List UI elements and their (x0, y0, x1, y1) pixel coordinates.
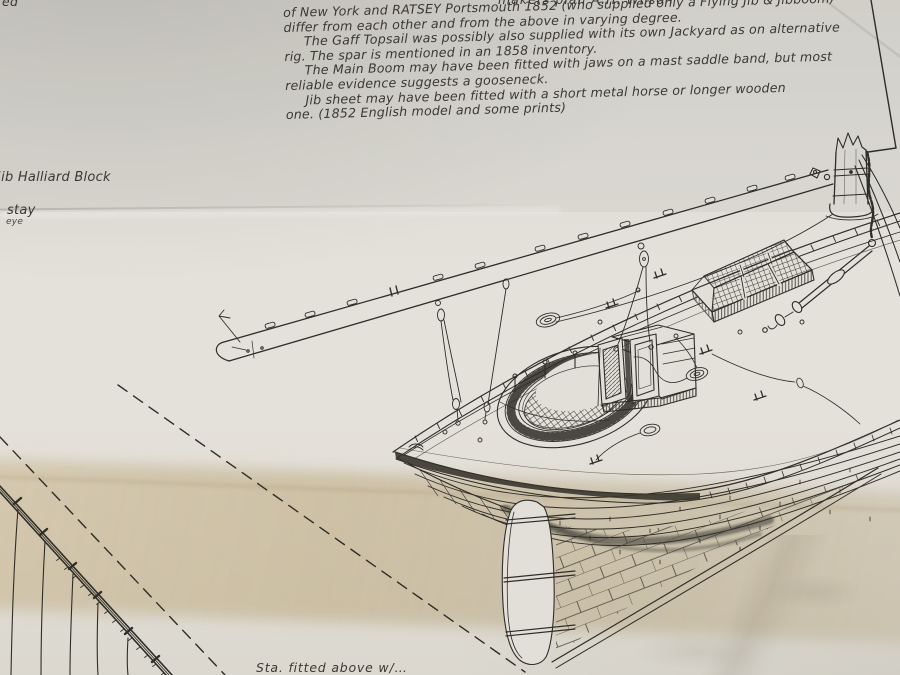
label-bottom-partial: Sta. fitted above w/… (256, 660, 408, 675)
rope-coil (639, 423, 661, 438)
rope-coil (535, 311, 562, 330)
label-stay: stay (7, 203, 36, 218)
mast-stump (810, 133, 878, 220)
label-eye: eye (6, 217, 23, 227)
skylight (692, 240, 814, 322)
gaff-spar (0, 486, 172, 675)
photographed-plan-sheet: makers plan A.H. Wilson of New York and … (0, 0, 900, 675)
handwritten-note-block: of New York and RATSEY Portsmouth 1852 (… (283, 0, 886, 123)
label-jib-halliard-block: Jib Halliard Block (0, 170, 111, 185)
companionway-hatch (598, 325, 696, 412)
label-fragment-ed: ed (2, 0, 18, 9)
